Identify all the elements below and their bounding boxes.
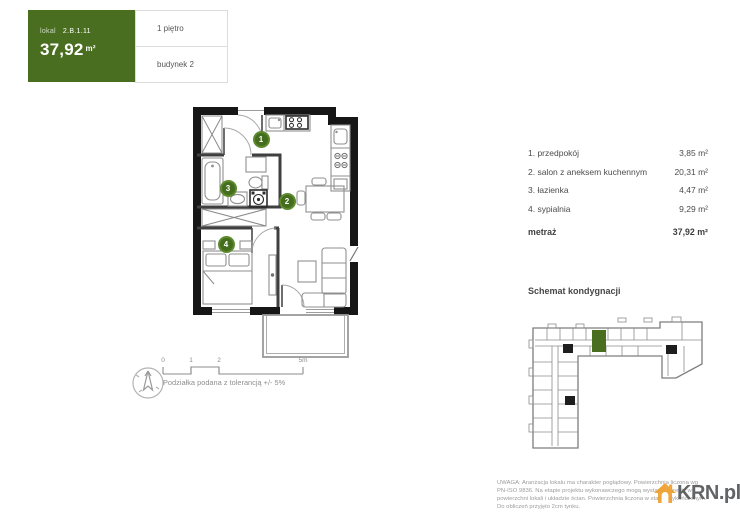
- nightstand-right: [240, 241, 252, 249]
- room-badge-4: 4: [218, 236, 235, 253]
- coffee-table: [298, 261, 316, 282]
- nightstand-left: [203, 241, 215, 249]
- schematic-highlighted-unit: [592, 330, 606, 352]
- krn-logo-text: KRN.pl: [677, 483, 740, 503]
- hob: [286, 116, 308, 129]
- krn-house-icon: [653, 481, 677, 505]
- room-badge-2: 2: [279, 193, 296, 210]
- floorplan-drawing: [0, 0, 740, 518]
- balcony: [263, 315, 348, 357]
- washing-machine: [250, 190, 267, 207]
- compass-icon: [133, 368, 163, 398]
- bed: [203, 251, 252, 304]
- krn-logo: KRN.pl: [653, 481, 740, 505]
- tv-board: [269, 255, 276, 295]
- room-badge-1-number: 1: [259, 135, 263, 144]
- sofa: [302, 248, 346, 307]
- scale-bar: [163, 367, 303, 374]
- wall-vent-mark: [350, 247, 358, 261]
- room-badge-3: 3: [220, 180, 237, 197]
- room-badge-1: 1: [253, 131, 270, 148]
- room-badge-2-number: 2: [285, 197, 289, 206]
- room-badge-4-number: 4: [224, 240, 228, 249]
- hob-2: [335, 153, 347, 167]
- dining-set: [297, 178, 344, 220]
- room-badge-3-number: 3: [226, 184, 230, 193]
